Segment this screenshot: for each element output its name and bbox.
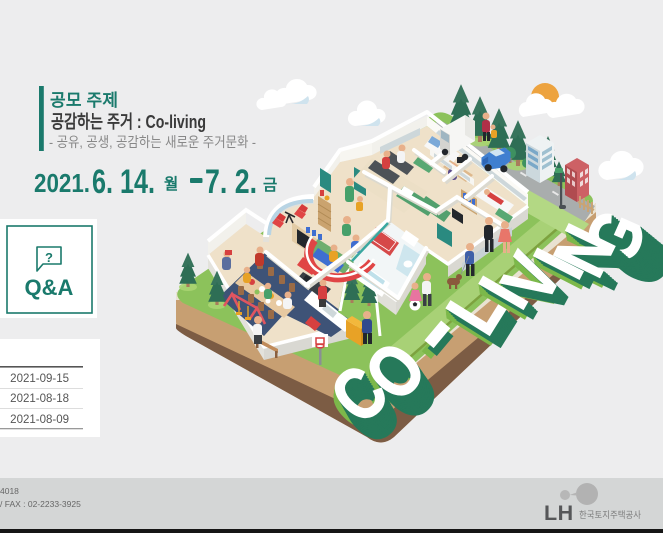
svg-text:4018: 4018 xyxy=(0,486,19,496)
svg-text:한국토지주택공사: 한국토지주택공사 xyxy=(579,510,642,520)
svg-text:- 공유, 공생, 공감하는 새로운 주거문화 -: - 공유, 공생, 공감하는 새로운 주거문화 - xyxy=(49,134,256,150)
svg-text:2021-08-09: 2021-08-09 xyxy=(10,414,69,426)
svg-text:6. 14.: 6. 14. xyxy=(92,163,155,201)
svg-text:Q&A: Q&A xyxy=(25,275,74,300)
svg-text:7. 2.: 7. 2. xyxy=(205,163,257,201)
svg-text:공감하는 주거 : Co-living: 공감하는 주거 : Co-living xyxy=(51,112,206,132)
svg-text:?: ? xyxy=(45,250,53,265)
svg-text:/ FAX : 02-2233-3925: / FAX : 02-2233-3925 xyxy=(0,499,81,509)
svg-text:금: 금 xyxy=(263,176,277,194)
svg-text:2021-08-18: 2021-08-18 xyxy=(10,393,69,405)
svg-text:LH: LH xyxy=(544,501,574,525)
svg-text:2021-09-15: 2021-09-15 xyxy=(10,373,69,385)
svg-text:2021.: 2021. xyxy=(34,168,90,198)
svg-text:공모 주제: 공모 주제 xyxy=(50,91,118,110)
svg-text:월: 월 xyxy=(164,175,178,193)
